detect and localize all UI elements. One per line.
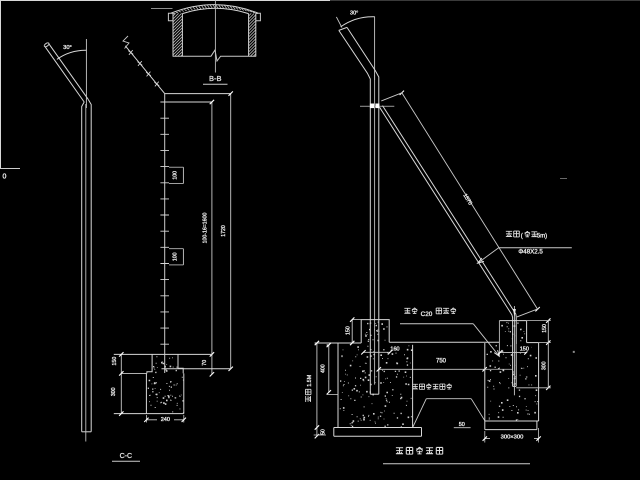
- svg-text:300: 300: [111, 387, 117, 396]
- svg-text:160: 160: [390, 347, 399, 353]
- svg-text:B-B: B-B: [209, 74, 222, 83]
- svg-text:100-16=1600: 100-16=1600: [203, 213, 209, 244]
- svg-text:50: 50: [320, 429, 326, 435]
- svg-text:30°: 30°: [350, 11, 358, 17]
- svg-text:5m): 5m): [537, 234, 547, 240]
- svg-text:150: 150: [520, 346, 529, 352]
- svg-text:150: 150: [112, 357, 118, 366]
- svg-text:240: 240: [161, 417, 170, 423]
- svg-text:150: 150: [345, 326, 351, 335]
- svg-text:Φ48X2.5: Φ48X2.5: [518, 249, 543, 256]
- svg-text:1720: 1720: [221, 225, 227, 237]
- svg-text:C20: C20: [421, 311, 433, 318]
- svg-text:50: 50: [459, 422, 465, 428]
- svg-text:300×300: 300×300: [501, 434, 524, 440]
- svg-text:150: 150: [542, 324, 548, 333]
- svg-text:30°: 30°: [63, 45, 72, 51]
- svg-text:(: (: [521, 234, 523, 240]
- svg-text:1.5M: 1.5M: [307, 374, 313, 386]
- svg-text:C-C: C-C: [120, 453, 132, 460]
- svg-text:100: 100: [173, 171, 179, 180]
- svg-text:70: 70: [202, 360, 208, 366]
- svg-text:750: 750: [436, 358, 447, 364]
- svg-text:300: 300: [542, 361, 548, 370]
- svg-text:0: 0: [3, 174, 7, 181]
- svg-text:400: 400: [320, 364, 326, 373]
- svg-text:100: 100: [173, 252, 179, 261]
